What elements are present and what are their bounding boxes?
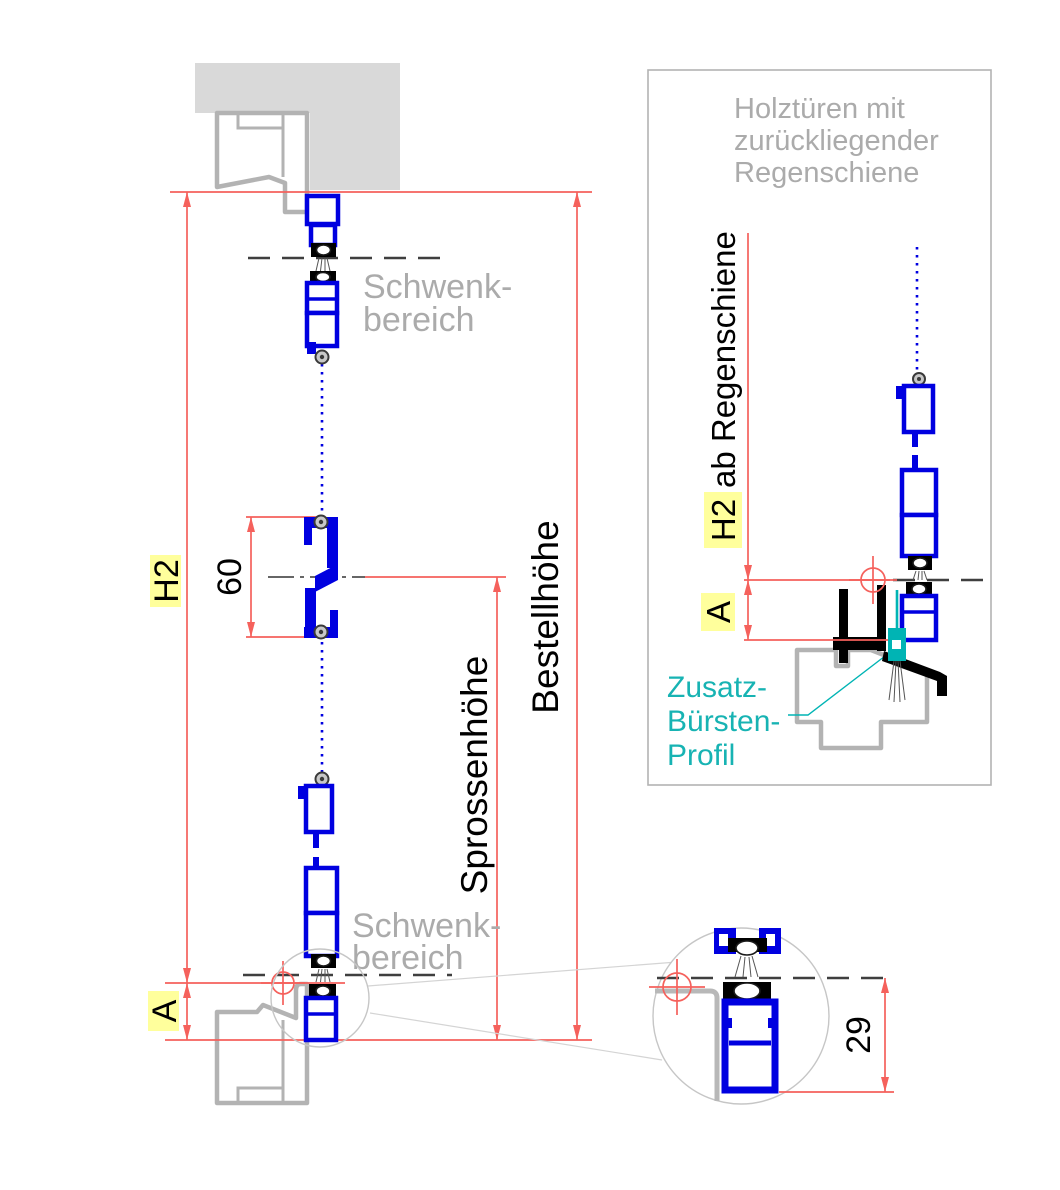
svg-text:zurückliegender: zurückliegender xyxy=(734,125,939,157)
schwenkbereich-label-top: Schwenk- bereich xyxy=(363,268,512,339)
door-section-drawing: H2 A 60 Sprossenhöhe Bestellhöhe xyxy=(0,0,1060,1190)
inset-dim-line xyxy=(744,233,902,640)
upper-sash-profile xyxy=(307,196,338,364)
svg-text:Regenschiene: Regenschiene xyxy=(734,157,919,189)
svg-text:60: 60 xyxy=(211,558,249,596)
h2-label: H2 xyxy=(148,555,186,607)
schwenkbereich-label-bottom: Schwenk- bereich xyxy=(352,907,501,977)
svg-text:Bestellhöhe: Bestellhöhe xyxy=(525,520,566,713)
svg-text:Bürsten-: Bürsten- xyxy=(667,705,780,738)
dim-a-left xyxy=(183,983,191,1040)
inset-title: Holztüren mit zurückliegender Regenschie… xyxy=(734,93,939,189)
svg-text:A: A xyxy=(146,999,184,1022)
svg-text:ab Regenschiene: ab Regenschiene xyxy=(705,231,742,488)
sprosse-profile xyxy=(304,516,338,639)
svg-text:Holztüren mit: Holztüren mit xyxy=(734,93,905,125)
svg-text:Profil: Profil xyxy=(667,739,735,772)
brush-profile-label: Zusatz- Bürsten- Profil xyxy=(667,671,780,772)
lower-sash-profile xyxy=(298,773,337,1041)
svg-text:bereich: bereich xyxy=(363,301,475,339)
svg-text:H2: H2 xyxy=(705,499,742,541)
upper-wood-frame xyxy=(217,113,307,212)
inset-h2-label: H2 ab Regenschiene xyxy=(704,231,742,548)
sprossenhoehe-label: Sprossenhöhe xyxy=(454,656,495,895)
technical-drawing-page: H2 A 60 Sprossenhöhe Bestellhöhe xyxy=(0,0,1060,1190)
inset-profile-stack xyxy=(896,373,936,640)
svg-text:Sprossenhöhe: Sprossenhöhe xyxy=(454,656,495,895)
svg-text:29: 29 xyxy=(840,1016,878,1054)
inset-a-label: A xyxy=(700,593,737,631)
label-29: 29 xyxy=(840,1016,878,1054)
svg-text:A: A xyxy=(700,601,737,623)
svg-text:Zusatz-: Zusatz- xyxy=(667,671,767,704)
label-60: 60 xyxy=(211,558,249,596)
a-label: A xyxy=(146,991,184,1031)
bestellhoehe-label: Bestellhöhe xyxy=(525,520,566,713)
lower-wood-frame xyxy=(217,984,307,1103)
dim-bestellhoehe xyxy=(573,192,581,1040)
inset-pivot-crosshair xyxy=(849,556,897,604)
svg-text:bereich: bereich xyxy=(352,939,464,977)
svg-text:H2: H2 xyxy=(148,559,186,602)
